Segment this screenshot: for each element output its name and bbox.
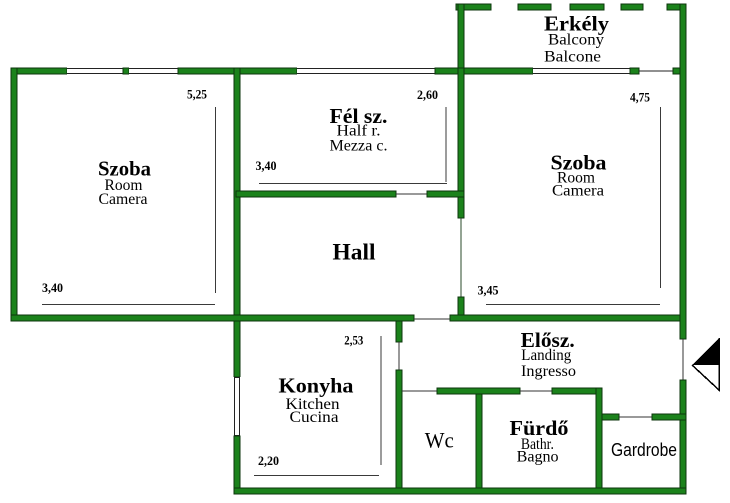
- svg-text:2,20: 2,20: [258, 454, 279, 468]
- svg-text:Balcone: Balcone: [544, 49, 601, 66]
- svg-text:Konyha: Konyha: [279, 374, 355, 398]
- svg-text:4,75: 4,75: [630, 91, 650, 105]
- svg-text:Bagno: Bagno: [517, 449, 559, 466]
- svg-text:Camera: Camera: [99, 191, 148, 208]
- svg-text:Balcony: Balcony: [548, 32, 604, 49]
- svg-text:Cucina: Cucina: [290, 409, 339, 426]
- svg-text:Hall: Hall: [333, 240, 376, 265]
- svg-text:Camera: Camera: [552, 183, 604, 200]
- svg-text:3,40: 3,40: [42, 281, 63, 295]
- svg-text:Wc: Wc: [425, 428, 454, 453]
- svg-text:3,45: 3,45: [478, 284, 499, 298]
- svg-text:5,25: 5,25: [187, 88, 207, 102]
- svg-text:3,40: 3,40: [256, 159, 277, 173]
- svg-text:Landing: Landing: [521, 347, 571, 364]
- svg-text:2,60: 2,60: [417, 88, 438, 102]
- svg-text:Mezza c.: Mezza c.: [330, 138, 388, 155]
- svg-text:Gardrobe: Gardrobe: [611, 440, 677, 460]
- svg-text:2,53: 2,53: [344, 334, 363, 348]
- svg-text:Ingresso: Ingresso: [521, 363, 576, 380]
